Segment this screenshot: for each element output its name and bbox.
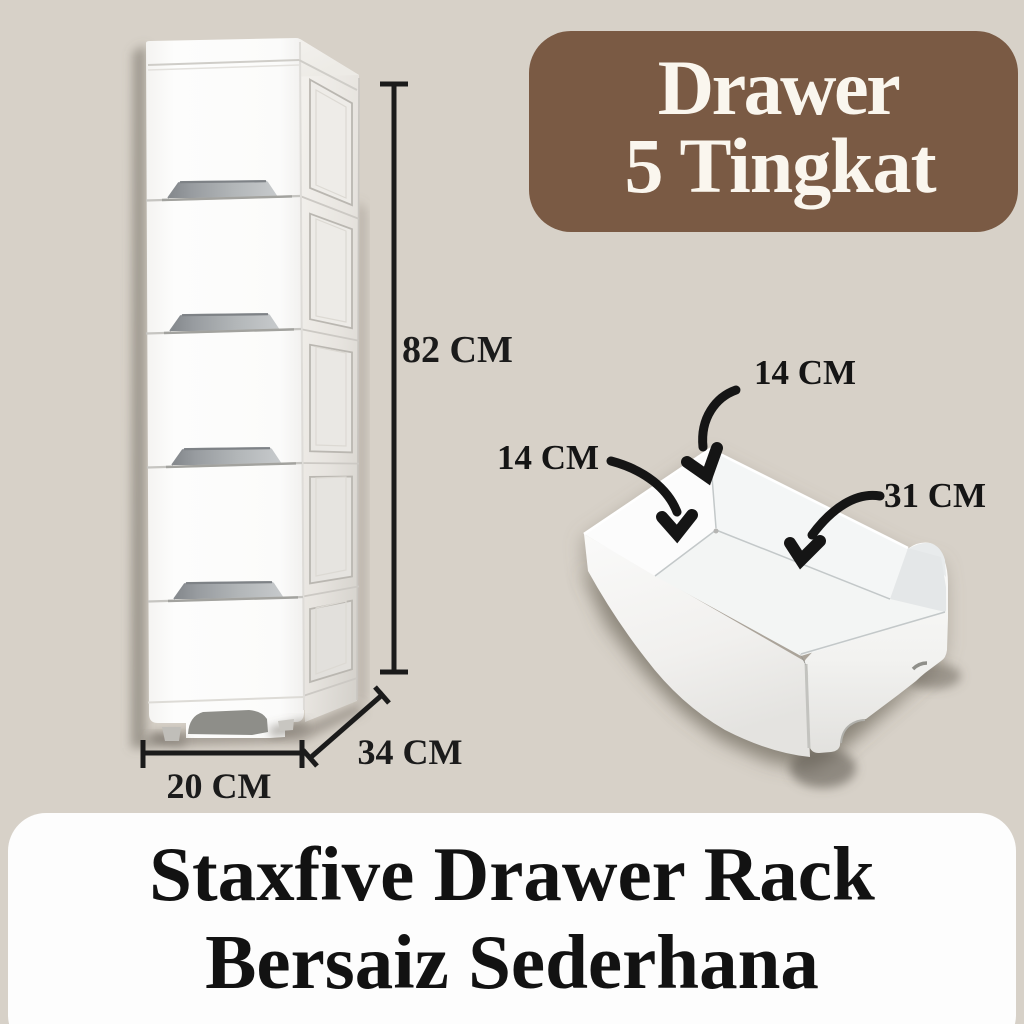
- svg-text:Bersaiz Sederhana: Bersaiz Sederhana: [205, 919, 819, 1005]
- svg-text:20 CM: 20 CM: [167, 766, 272, 806]
- svg-text:82 CM: 82 CM: [402, 329, 513, 371]
- svg-text:34 CM: 34 CM: [358, 732, 463, 772]
- svg-text:14 CM: 14 CM: [754, 353, 856, 392]
- svg-text:5 Tingkat: 5 Tingkat: [624, 122, 936, 209]
- svg-text:14 CM: 14 CM: [497, 438, 599, 477]
- svg-text:Drawer: Drawer: [658, 44, 899, 131]
- svg-text:31 CM: 31 CM: [884, 476, 986, 515]
- svg-text:Staxfive Drawer Rack: Staxfive Drawer Rack: [149, 831, 875, 917]
